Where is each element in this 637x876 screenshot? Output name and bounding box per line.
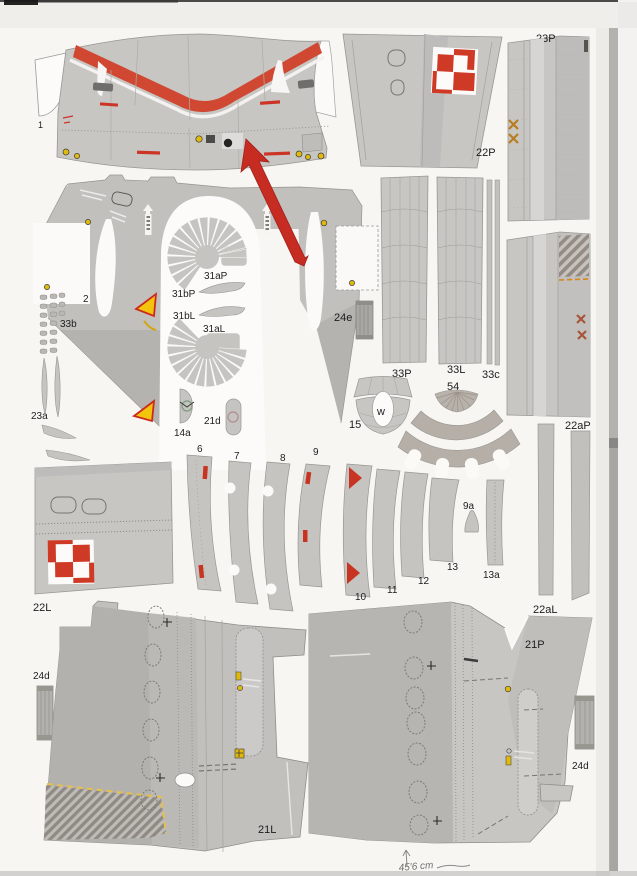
svg-text:12: 12 — [418, 576, 430, 587]
svg-text:11: 11 — [387, 585, 398, 596]
svg-text:22P: 22P — [476, 147, 496, 159]
svg-text:31aP: 31aP — [204, 271, 228, 282]
svg-text:13: 13 — [447, 562, 459, 573]
svg-text:6: 6 — [197, 444, 203, 455]
svg-text:9: 9 — [313, 447, 319, 458]
svg-text:8: 8 — [280, 453, 286, 464]
svg-text:21d: 21d — [204, 416, 221, 427]
svg-text:24e: 24e — [334, 312, 352, 324]
svg-text:21L: 21L — [258, 824, 276, 836]
svg-text:22L: 22L — [33, 602, 51, 614]
svg-text:9a: 9a — [463, 501, 475, 512]
svg-text:w: w — [376, 406, 385, 418]
svg-text:33c: 33c — [482, 369, 500, 381]
svg-text:13a: 13a — [483, 570, 500, 581]
svg-text:33b: 33b — [60, 319, 77, 330]
svg-text:31bP: 31bP — [172, 289, 196, 300]
svg-text:31aL: 31aL — [203, 324, 226, 335]
svg-text:33L: 33L — [447, 364, 465, 376]
svg-text:21P: 21P — [525, 639, 545, 651]
svg-text:24d: 24d — [572, 761, 589, 772]
svg-text:22aL: 22aL — [533, 604, 557, 616]
svg-text:22aP: 22aP — [565, 420, 591, 432]
svg-text:23a: 23a — [31, 411, 48, 422]
svg-text:7: 7 — [234, 451, 240, 462]
svg-text:10: 10 — [355, 592, 367, 603]
svg-text:31bL: 31bL — [173, 311, 196, 322]
svg-text:1: 1 — [38, 120, 43, 130]
svg-text:2: 2 — [83, 294, 89, 305]
svg-text:15: 15 — [349, 419, 361, 431]
svg-text:24d: 24d — [33, 671, 50, 682]
svg-text:14a: 14a — [174, 428, 191, 439]
